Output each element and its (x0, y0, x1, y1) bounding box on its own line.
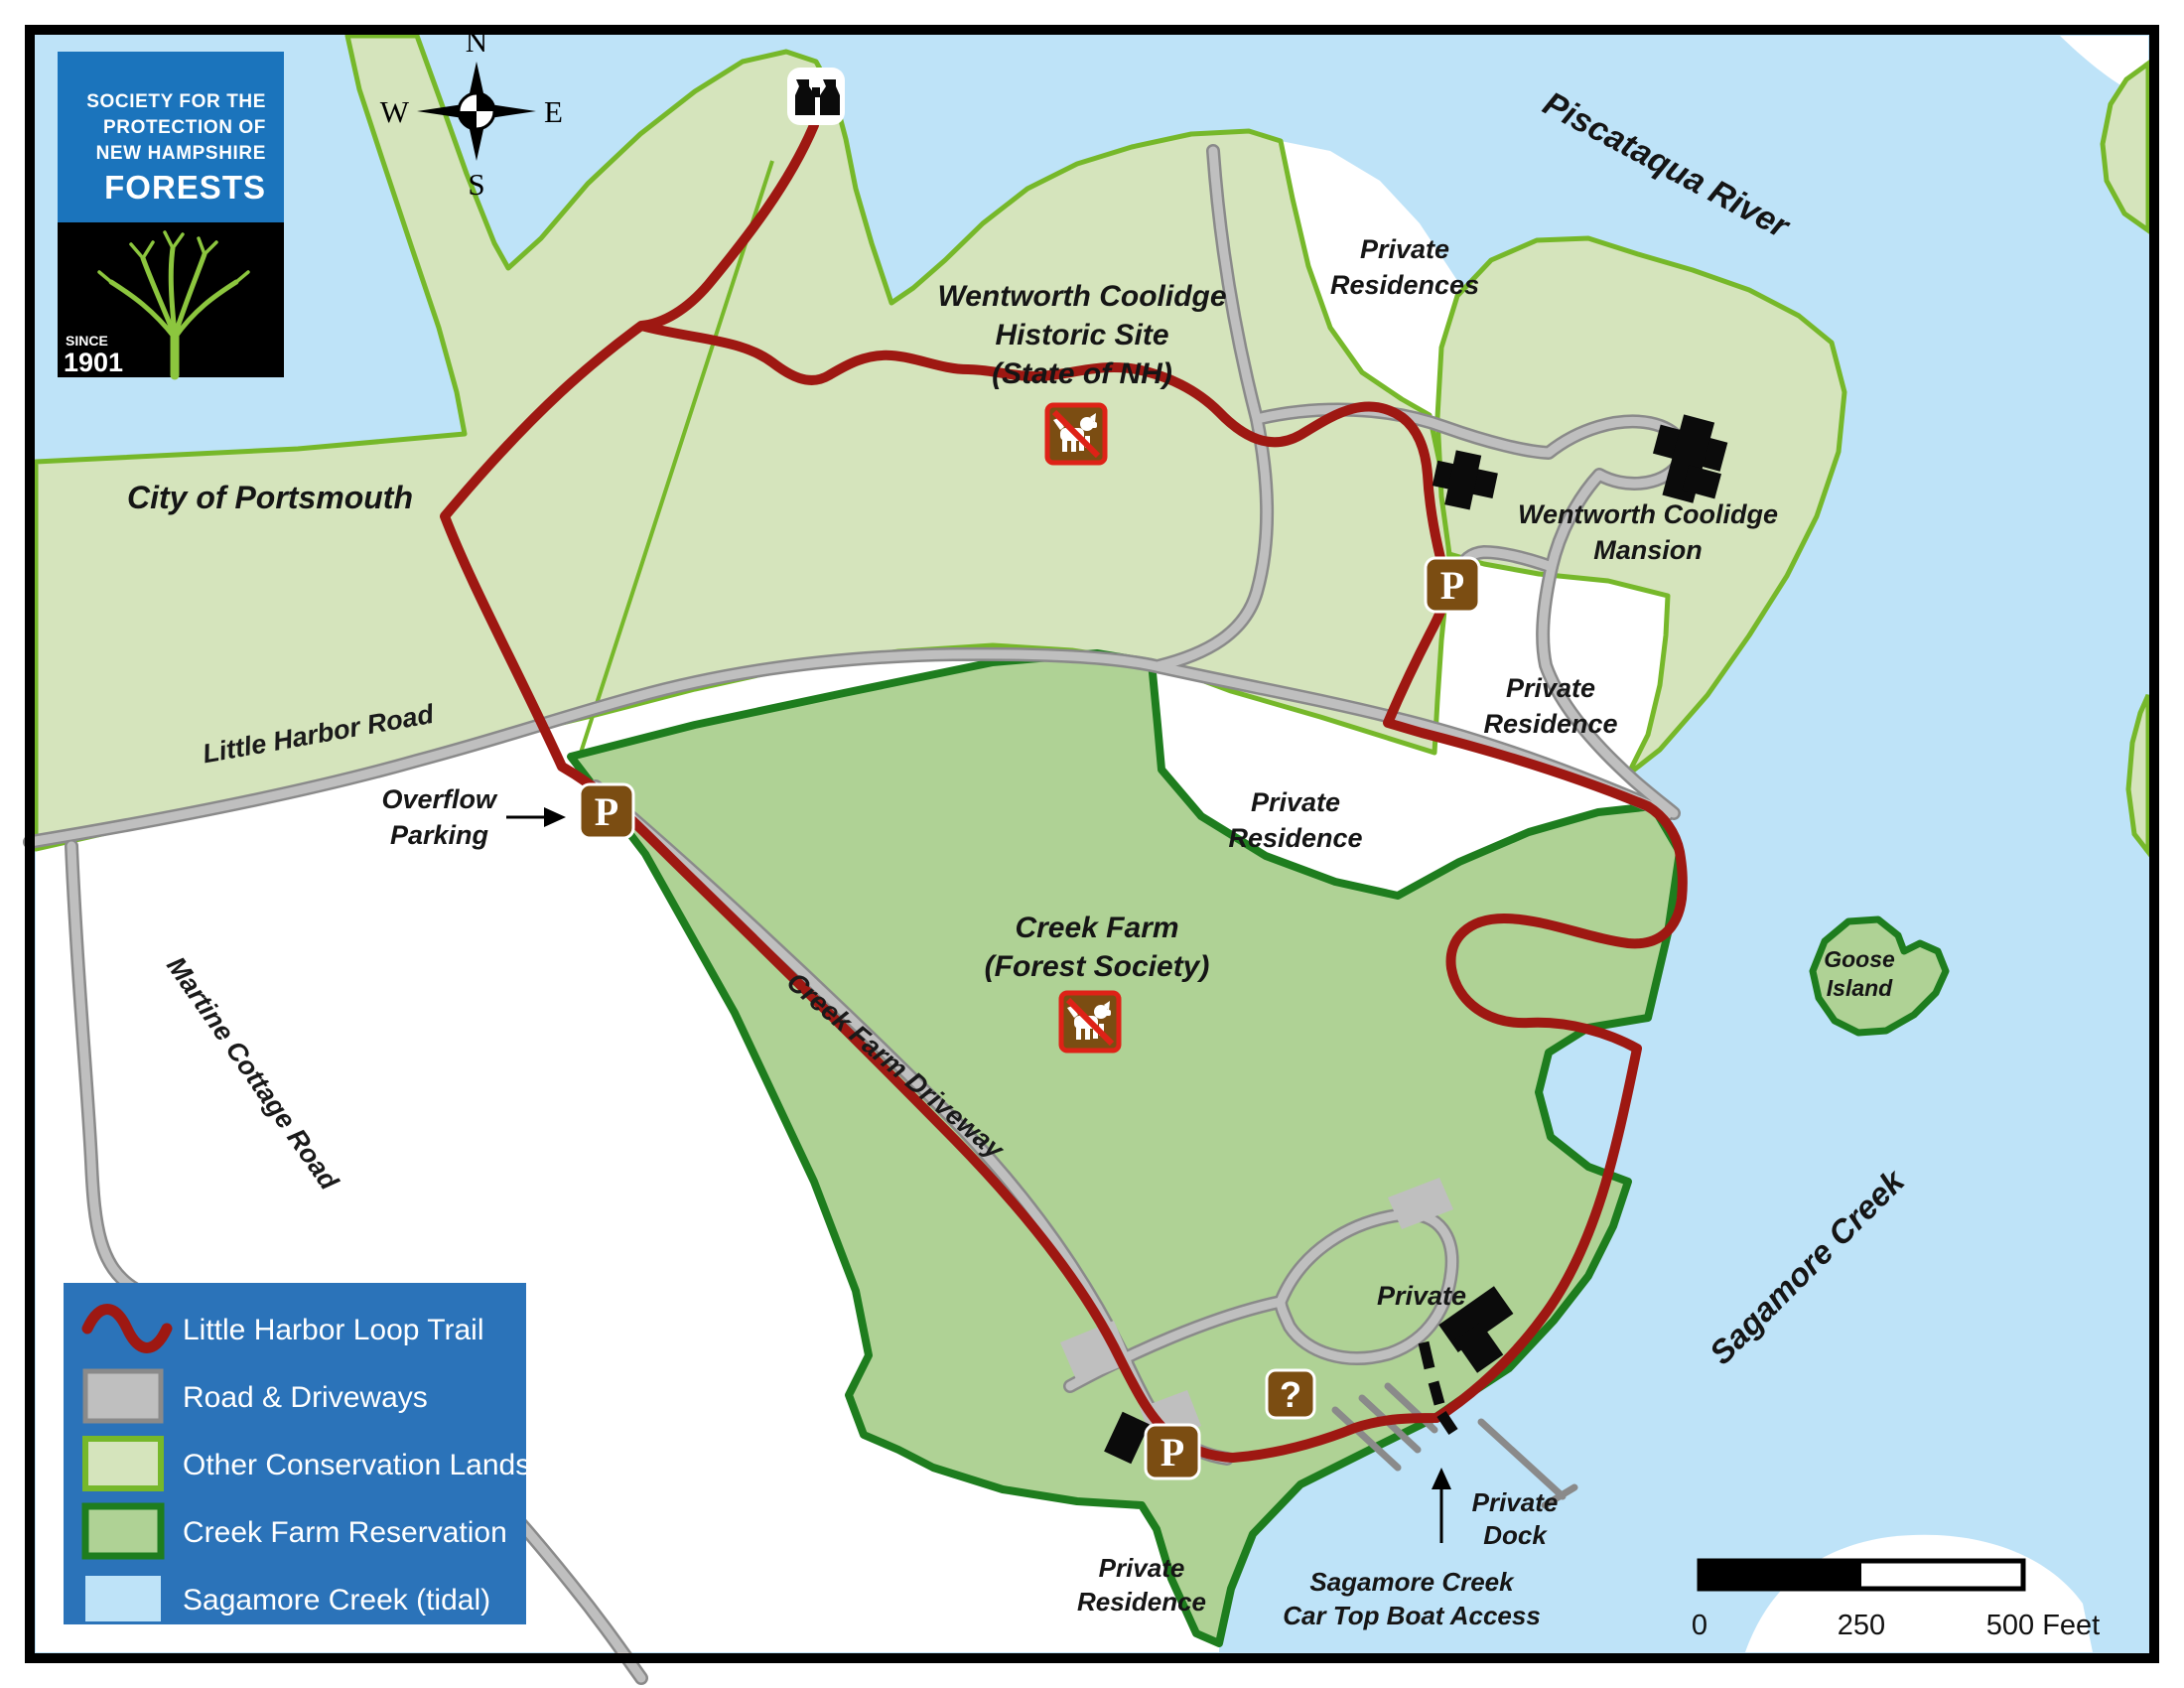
svg-text:Mansion: Mansion (1593, 535, 1703, 565)
forest-society-logo: SOCIETY FOR THE PROTECTION OF NEW HAMPSH… (58, 52, 284, 377)
svg-text:Wentworth Coolidge: Wentworth Coolidge (1518, 499, 1778, 529)
map-canvas: P ? N S W E (0, 0, 2184, 1688)
scale-tick-500: 500 Feet (1986, 1610, 2100, 1641)
svg-text:Residence: Residence (1483, 709, 1617, 739)
svg-text:Parking: Parking (390, 820, 489, 850)
legend: Little Harbor Loop Trail Road & Driveway… (64, 1283, 530, 1624)
svg-text:Goose: Goose (1824, 946, 1895, 972)
svg-text:Historic Site: Historic Site (995, 319, 1168, 352)
svg-text:(Forest Society): (Forest Society) (985, 950, 1210, 983)
logo-line1: SOCIETY FOR THE (86, 91, 266, 112)
svg-text:Private: Private (1099, 1553, 1185, 1583)
logo-line2: PROTECTION OF (103, 117, 266, 138)
compass-w: W (380, 94, 410, 129)
legend-swatch-roads (85, 1371, 161, 1421)
svg-text:Private: Private (1506, 673, 1595, 703)
svg-text:Residences: Residences (1330, 270, 1479, 300)
logo-year: 1901 (64, 348, 123, 377)
parking-icon-overflow (580, 784, 633, 838)
scale-tick-0: 0 (1692, 1610, 1707, 1641)
legend-label-other-conservation: Other Conservation Lands (183, 1449, 530, 1481)
parking-icon-mansion (1426, 558, 1479, 612)
compass-e: E (544, 94, 563, 129)
label-private-mansion: Private (1377, 1281, 1466, 1311)
svg-text:Residence: Residence (1077, 1587, 1206, 1617)
svg-text:Dock: Dock (1483, 1520, 1548, 1550)
logo-line3: NEW HAMPSHIRE (96, 143, 266, 164)
svg-text:Car Top Boat Access: Car Top Boat Access (1283, 1601, 1541, 1630)
legend-label-creek-farm: Creek Farm Reservation (183, 1516, 507, 1549)
svg-text:?: ? (1280, 1374, 1301, 1415)
no-dogs-icon-creek-farm (1061, 993, 1119, 1051)
trail-map-page: P ? N S W E (0, 0, 2184, 1688)
label-city-of-portsmouth: City of Portsmouth (127, 480, 413, 515)
no-dogs-icon-wentworth (1047, 405, 1105, 463)
svg-text:(State of NH): (State of NH) (992, 357, 1172, 390)
legend-swatch-other-conservation (85, 1439, 161, 1488)
compass-s: S (468, 167, 484, 202)
legend-label-water: Sagamore Creek (tidal) (183, 1584, 490, 1617)
svg-text:Creek Farm: Creek Farm (1015, 912, 1178, 944)
svg-text:Residence: Residence (1228, 823, 1362, 853)
legend-swatch-creek-farm (85, 1506, 161, 1556)
legend-label-trail: Little Harbor Loop Trail (183, 1314, 484, 1346)
logo-since: SINCE (66, 333, 108, 349)
legend-label-roads: Road & Driveways (183, 1381, 428, 1414)
legend-swatch-water (85, 1576, 161, 1621)
info-icon: ? (1267, 1370, 1314, 1418)
parking-icon-creek-farm (1146, 1425, 1199, 1478)
svg-text:Island: Island (1827, 975, 1893, 1001)
svg-text:Private: Private (1472, 1487, 1559, 1517)
scale-tick-250: 250 (1838, 1610, 1885, 1641)
logo-line4: FORESTS (104, 169, 266, 206)
svg-text:Wentworth Coolidge: Wentworth Coolidge (937, 280, 1226, 313)
binoculars-card (787, 68, 845, 125)
svg-text:Overflow: Overflow (381, 784, 498, 814)
svg-text:Private: Private (1360, 234, 1449, 264)
svg-text:Sagamore Creek: Sagamore Creek (1309, 1567, 1515, 1597)
svg-text:Private: Private (1251, 787, 1340, 817)
